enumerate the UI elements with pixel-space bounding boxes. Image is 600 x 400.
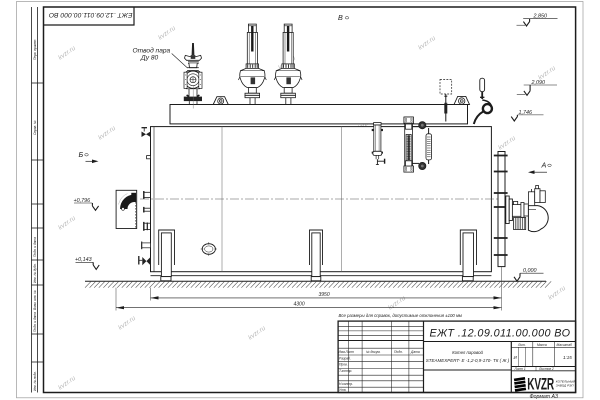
svg-text:Дата: Дата [410,350,420,354]
svg-text:+0,143: +0,143 [75,257,92,263]
svg-text:Инв. № дубл.: Инв. № дубл. [33,263,37,283]
svg-text:Взам. инв. №: Взам. инв. № [33,290,37,310]
svg-text:№ докум.: № докум. [366,350,381,354]
svg-text:В: В [338,13,343,22]
svg-text:А: А [541,161,547,170]
svg-text:Изм.Лист: Изм.Лист [339,350,355,354]
svg-text:Лист 1: Лист 1 [514,367,526,371]
svg-text:3950: 3950 [319,292,330,298]
svg-text:Пров.: Пров. [339,363,348,367]
svg-text:2,090: 2,090 [531,80,546,86]
svg-text:STEAMEXPERT- Е -1,2-0,9-170- Т: STEAMEXPERT- Е -1,2-0,9-170- ТК ( Ж ) [426,358,510,363]
svg-text:Формат А3: Формат А3 [530,394,558,400]
svg-text:Подп. и дата: Подп. и дата [33,237,37,257]
svg-text:Подп.: Подп. [394,350,403,354]
svg-text:Б: Б [79,150,84,159]
svg-text:4300: 4300 [294,302,305,308]
svg-text:Разраб.: Разраб. [339,357,351,361]
svg-text:Масса: Масса [537,343,547,347]
svg-text:Инв. № подл.: Инв. № подл. [33,371,37,391]
svg-text:2,850: 2,850 [533,14,548,20]
svg-text:Н.контр.: Н.контр. [339,382,353,386]
svg-text:Перв. примен.: Перв. примен. [33,39,37,60]
svg-text:Утв.: Утв. [339,388,347,392]
svg-text:+0,796: +0,796 [74,198,91,204]
svg-text:0,000: 0,000 [523,268,537,274]
svg-text:1:15: 1:15 [563,355,572,360]
svg-text:Котел паровой: Котел паровой [452,350,483,355]
svg-text:Подп. и дата: Подп. и дата [33,312,37,332]
svg-text:ЕЖТ .12.09.011.00.000 ВО: ЕЖТ .12.09.011.00.000 ВО [430,327,571,339]
svg-text:KVZR: KVZR [527,374,554,393]
svg-text:Отвод пара: Отвод пара [133,46,171,54]
svg-text:Т.контр.: Т.контр. [339,369,352,373]
svg-text:Листов 2: Листов 2 [538,367,554,371]
svg-text:Все размеры для справок, допус: Все размеры для справок, допустимые откл… [339,313,462,318]
svg-text:1,746: 1,746 [519,110,533,116]
svg-text:Ду 80: Ду 80 [140,54,159,61]
svg-text:Справ. №: Справ. № [33,120,37,135]
svg-text:Лит.: Лит. [517,343,526,347]
svg-text:ЕЖТ .12.09.011.00.000 ВО: ЕЖТ .12.09.011.00.000 ВО [48,11,132,18]
svg-text:ЗАВОД РЭП: ЗАВОД РЭП [556,384,575,388]
svg-text:Масштаб: Масштаб [557,343,573,347]
